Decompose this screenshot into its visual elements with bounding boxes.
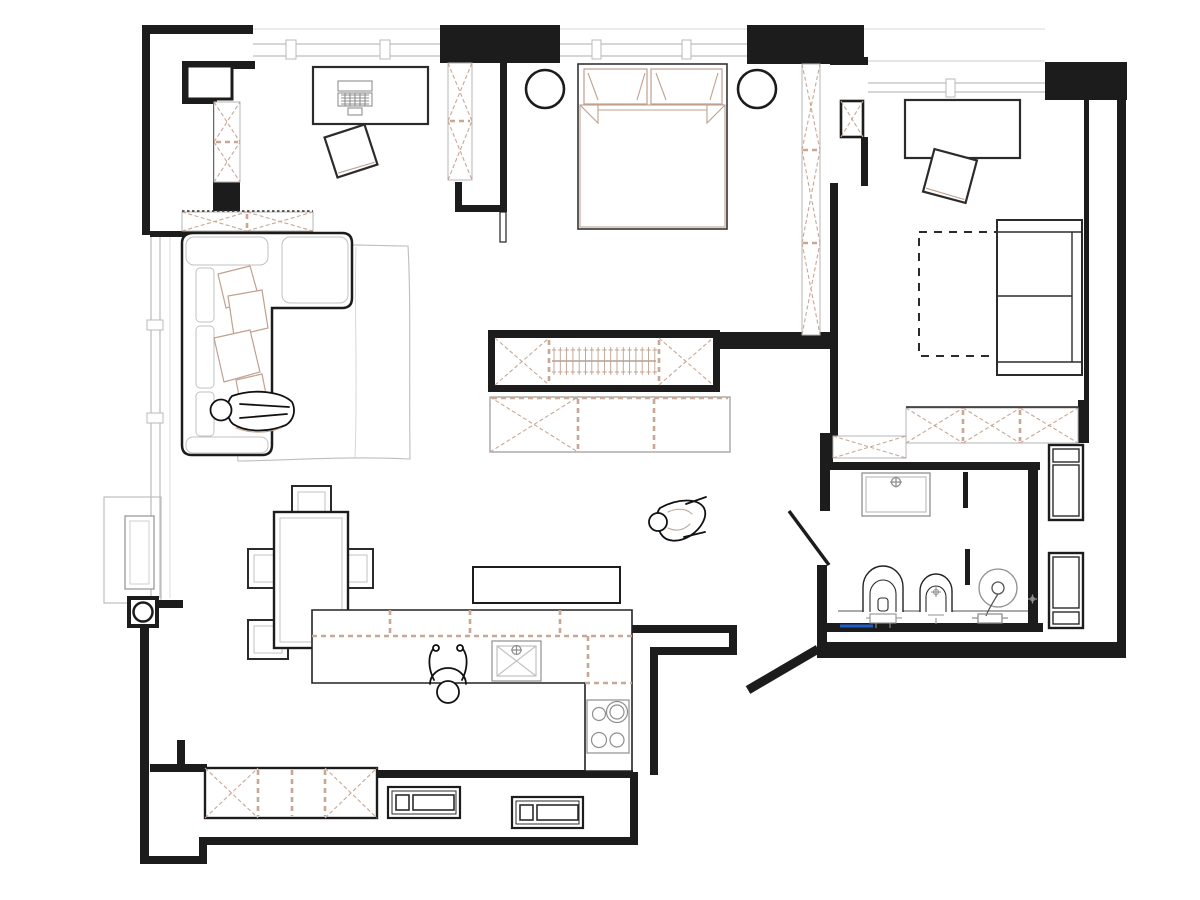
wall-shelf <box>473 567 620 603</box>
tall-cabinet-1 <box>1049 445 1083 520</box>
balcony-door-column <box>129 598 157 626</box>
hatched-column <box>841 101 863 137</box>
closet-interior <box>495 338 713 385</box>
planter <box>125 516 154 589</box>
tall-cabinet-2 <box>1049 553 1083 628</box>
washbasin <box>862 473 930 516</box>
bedroom-door-leaf <box>500 212 506 242</box>
bedroom <box>526 64 776 229</box>
window-bedroom <box>560 40 747 59</box>
pull-out-bed <box>919 232 997 356</box>
double-bed <box>578 64 727 229</box>
ventilation-shaft <box>187 66 232 99</box>
study <box>905 100 1082 375</box>
balcony <box>104 497 161 603</box>
shower <box>972 569 1037 623</box>
tv-console <box>490 397 730 452</box>
study-desk <box>905 100 1020 158</box>
nightstand-right <box>738 70 776 108</box>
pillow-right <box>651 69 722 104</box>
radiator-1 <box>388 787 460 818</box>
window-study <box>868 79 1045 97</box>
office-chair <box>325 125 378 178</box>
kitchen-counter <box>312 610 632 771</box>
living-room <box>182 233 410 461</box>
bathroom <box>838 473 1037 628</box>
bedroom-wardrobe-left <box>448 63 472 180</box>
kitchen-niche-wardrobe <box>205 768 377 818</box>
bedroom-wardrobe-right <box>802 64 820 335</box>
radiator-2 <box>512 797 583 828</box>
nightstand-left <box>526 70 564 108</box>
corridor-wardrobe <box>833 407 1078 458</box>
office-desk <box>313 67 428 124</box>
entry-diagonal-wall <box>748 649 818 690</box>
bidet <box>920 574 952 624</box>
floor-plan-canvas <box>0 0 1200 900</box>
person-walking <box>649 497 706 541</box>
bathroom-door-leaf <box>789 511 829 565</box>
toilet <box>863 566 903 628</box>
window-office <box>253 40 440 59</box>
floor-plan-page <box>0 0 1200 900</box>
sofa-bed <box>919 220 1082 375</box>
office-wardrobe-horizontal <box>182 211 313 231</box>
office-wardrobe-vertical <box>214 102 240 182</box>
chair-top <box>292 486 331 514</box>
